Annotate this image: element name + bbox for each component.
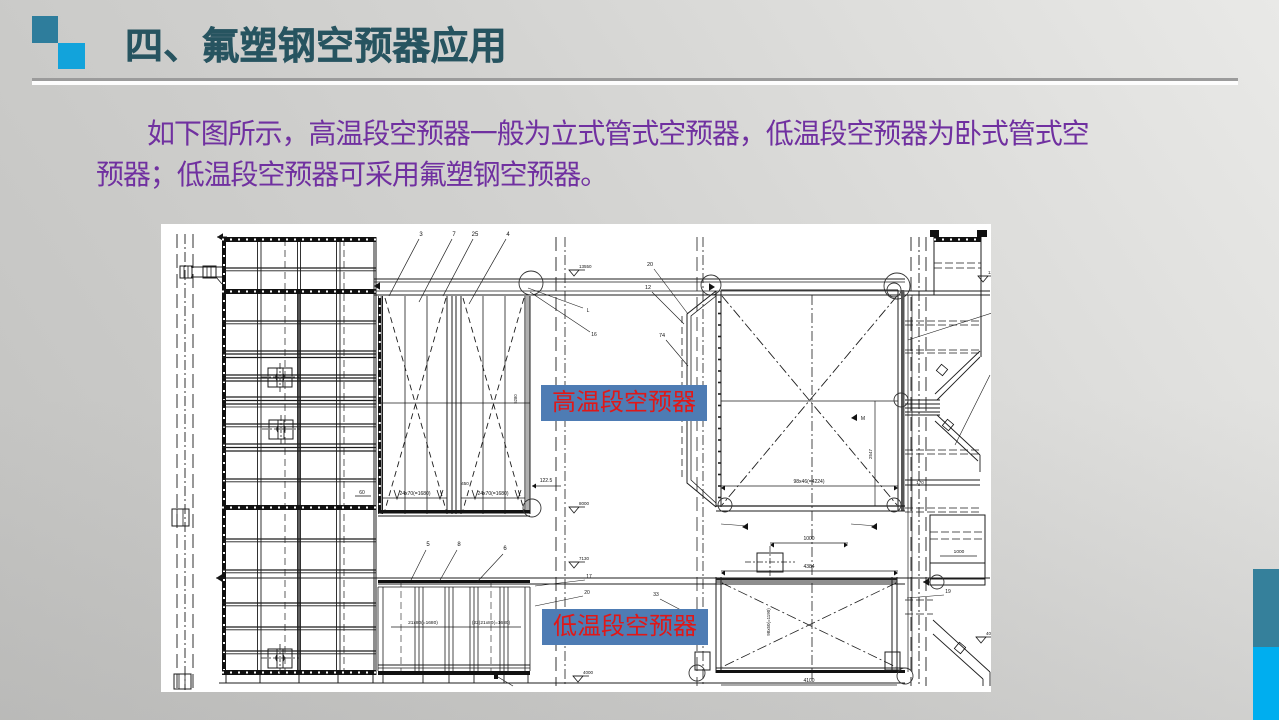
svg-text:24x70(=1680): 24x70(=1680) — [400, 491, 431, 497]
svg-text:19: 19 — [945, 589, 951, 595]
svg-text:74: 74 — [659, 333, 665, 339]
svg-text:16: 16 — [591, 332, 597, 338]
svg-text:17: 17 — [586, 574, 592, 580]
svg-text:25: 25 — [472, 232, 479, 238]
svg-text:4100: 4100 — [803, 678, 814, 684]
svg-text:2547: 2547 — [868, 448, 873, 459]
svg-text:98x46(=4224): 98x46(=4224) — [794, 479, 825, 485]
svg-text:L: L — [587, 308, 590, 314]
svg-text:12: 12 — [645, 285, 651, 291]
svg-text:4384: 4384 — [803, 564, 814, 570]
svg-text:1000: 1000 — [803, 536, 814, 542]
svg-text:122.5: 122.5 — [540, 478, 553, 484]
svg-text:60: 60 — [359, 490, 365, 496]
svg-text:170: 170 — [916, 480, 924, 485]
svg-text:450: 450 — [461, 481, 469, 486]
svg-text:33: 33 — [653, 592, 659, 598]
svg-text:4000: 4000 — [986, 631, 991, 636]
svg-text:7130: 7130 — [579, 556, 590, 561]
svg-text:20: 20 — [584, 590, 590, 596]
svg-text:M: M — [861, 416, 865, 422]
svg-text:1000: 1000 — [954, 549, 965, 555]
svg-text:20: 20 — [647, 262, 653, 268]
svg-text:(22)21x80(=1680): (22)21x80(=1680) — [472, 620, 511, 626]
svg-text:21x80(=1680): 21x80(=1680) — [408, 620, 438, 626]
svg-text:13550: 13550 — [579, 264, 592, 269]
svg-text:5280: 5280 — [513, 394, 518, 404]
svg-text:8000: 8000 — [579, 501, 590, 506]
svg-text:24x70(=1680): 24x70(=1680) — [478, 491, 509, 497]
svg-text:4000: 4000 — [583, 670, 594, 675]
svg-text:13550: 13550 — [988, 270, 991, 275]
svg-text:98x50(=1190): 98x50(=1190) — [766, 608, 771, 636]
